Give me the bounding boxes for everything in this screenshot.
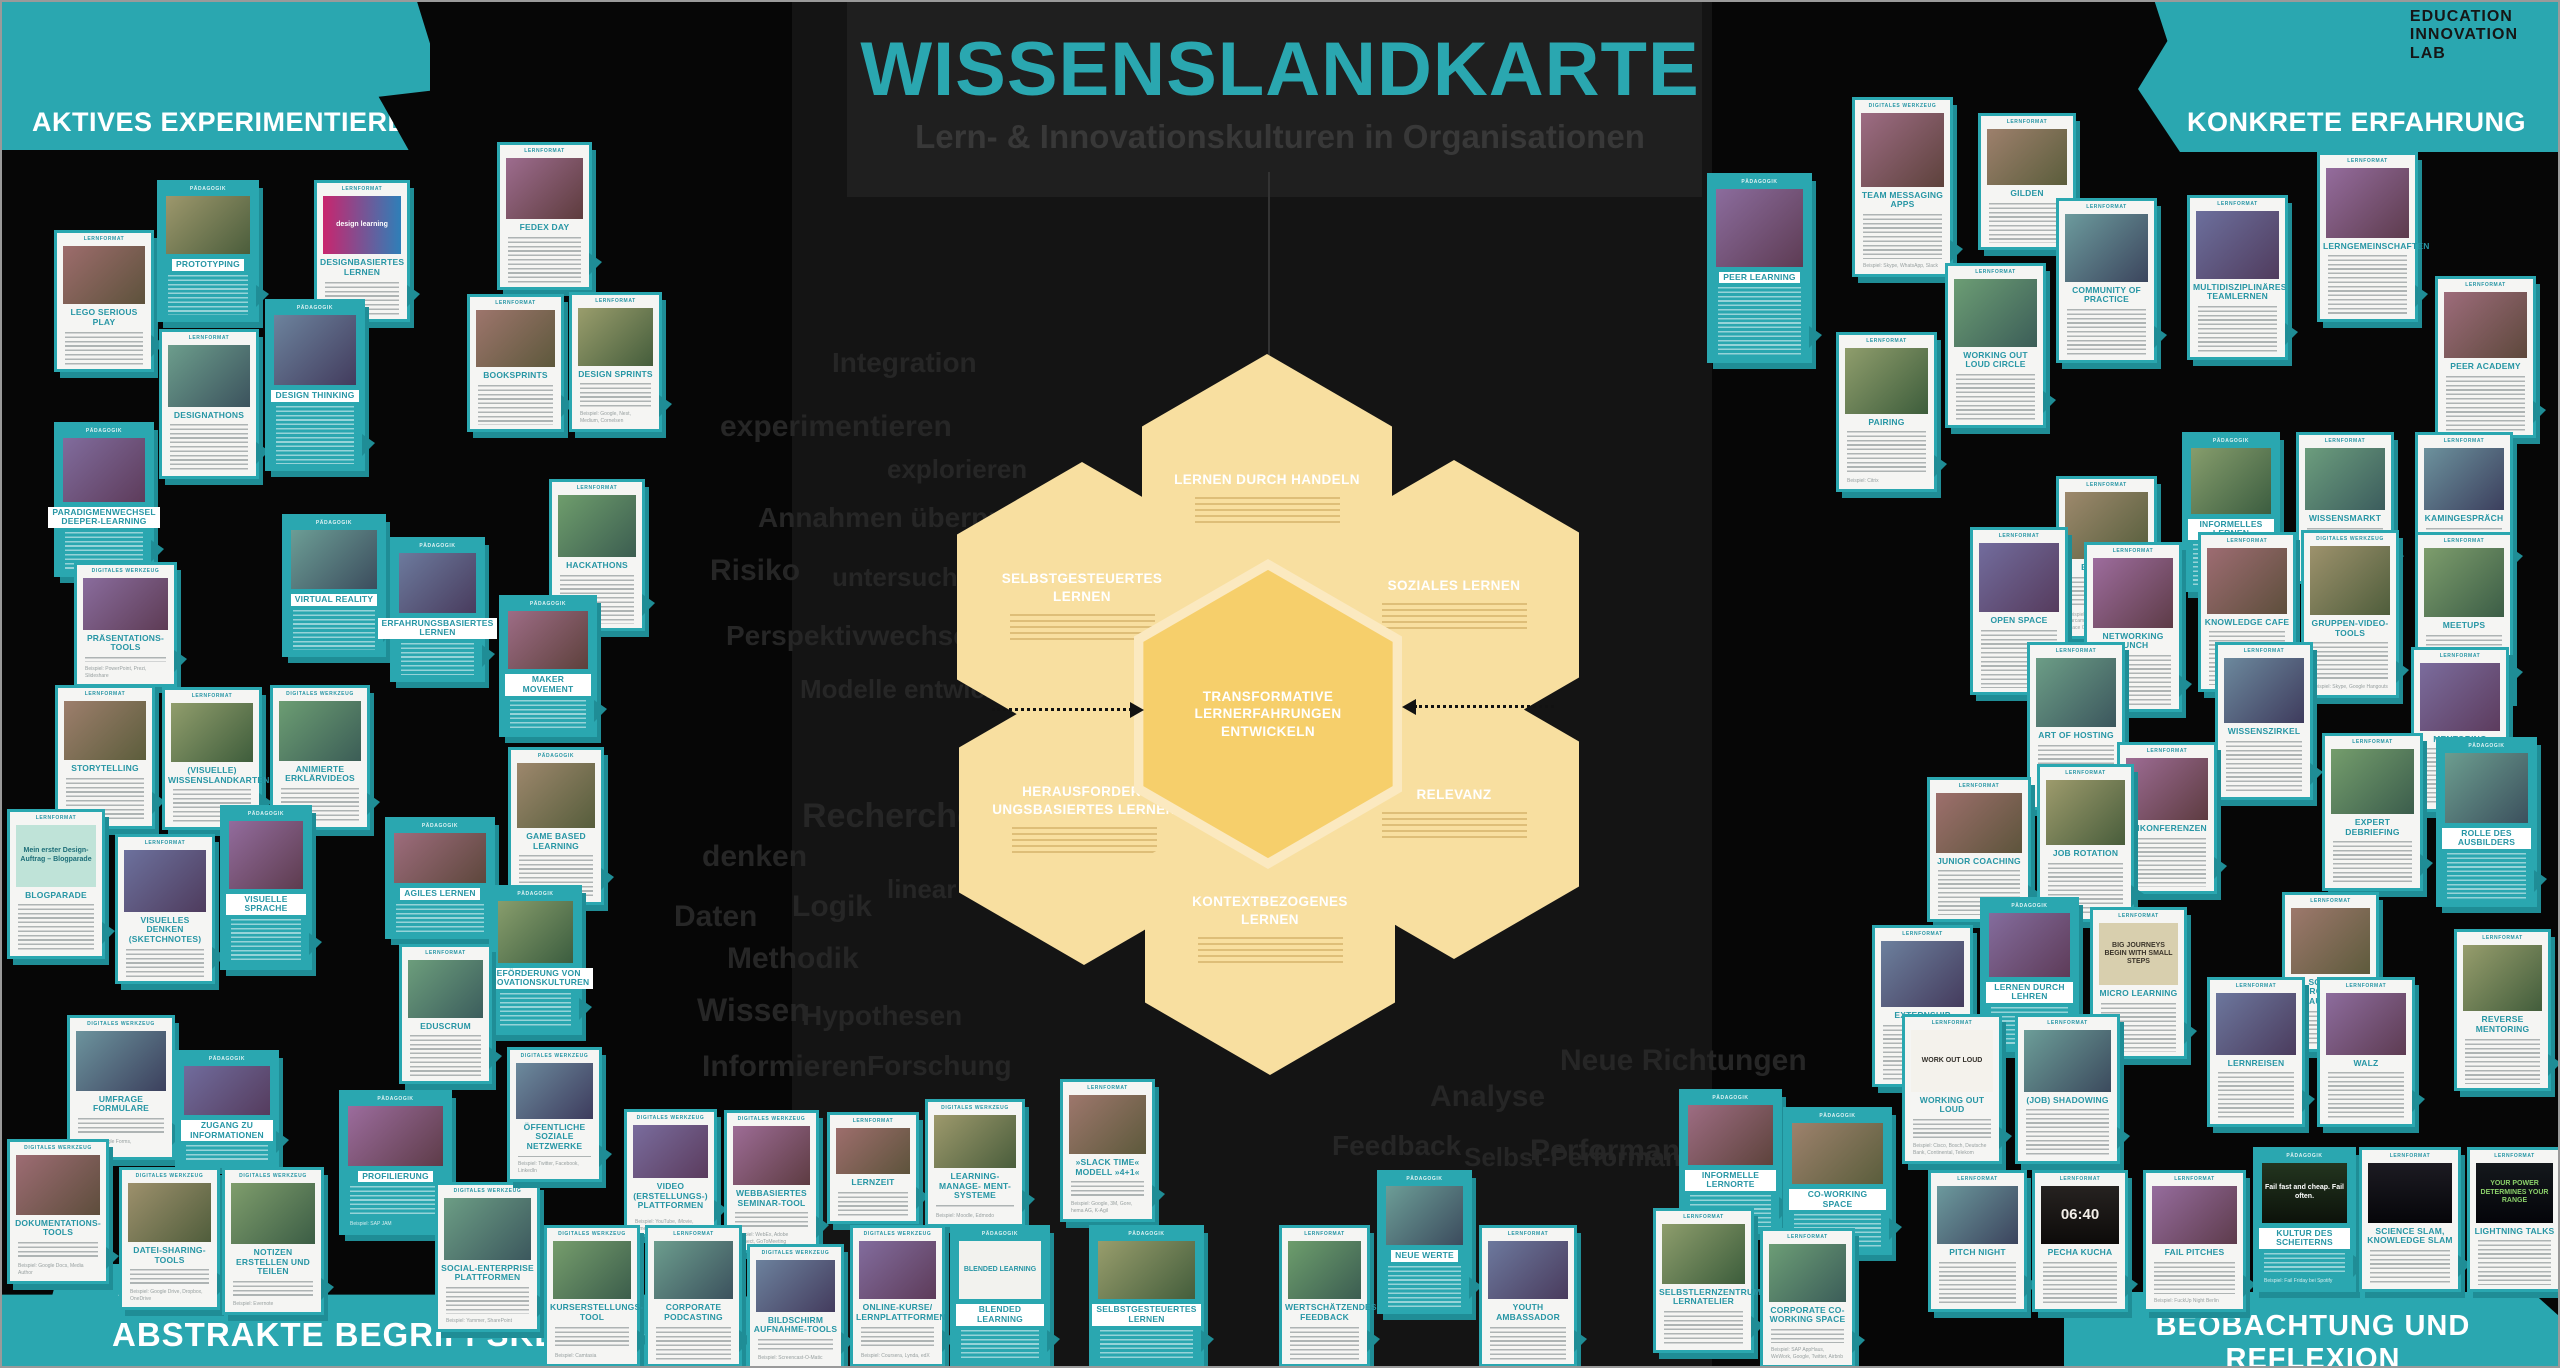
card-example: Beispiel: Cisco, Bosch, Deutsche Bank, C…: [1913, 1143, 1991, 1156]
card: LERNFORMATLERNZEIT: [827, 1112, 919, 1224]
card-body-text: [2264, 1253, 2345, 1273]
card-body-text: [656, 1327, 731, 1360]
card-body-text: [65, 332, 143, 365]
card: LERNFORMAT(JOB) SHADOWING: [2015, 1014, 2120, 1164]
card: PÄDAGOGIKZUGANG ZU INFORMATIONEN: [175, 1050, 279, 1168]
card-body-text: [2446, 376, 2525, 431]
card-category-tag: LERNFORMAT: [1931, 1176, 2024, 1182]
card-photo: [517, 763, 595, 828]
background-word: linear: [887, 874, 956, 905]
card-photo: [2326, 993, 2406, 1055]
card-photo: [1769, 1244, 1846, 1302]
card-category-tag: PÄDAGOGIK: [953, 1231, 1047, 1237]
card-photo: [229, 821, 303, 889]
card-photo: [2310, 546, 2390, 615]
card-category-tag: PÄDAGOGIK: [1710, 179, 1809, 185]
card-body-text: [500, 993, 571, 1028]
card-photo: [633, 1125, 708, 1178]
card: DIGITALES WERKZEUGGRUPPEN-VIDEO-TOOLSBei…: [2301, 530, 2399, 698]
card-body-text: [1490, 1327, 1566, 1360]
card-category-tag: LERNFORMAT: [2320, 158, 2415, 164]
card-category-tag: DIGITALES WERKZEUG: [627, 1115, 714, 1121]
connector-dotted-right: [1414, 705, 1554, 708]
card-title: JOB ROTATION: [2043, 849, 2128, 859]
card-photo: [408, 960, 483, 1018]
card-photo: [2424, 448, 2504, 510]
card-photo: [399, 553, 476, 613]
card-body-text: [1388, 1266, 1461, 1307]
card-body-text: [18, 904, 94, 952]
card-title: SELBSTLERNZENTRUM/ LERNATELIER: [1659, 1288, 1748, 1308]
background-word: Informieren: [702, 1050, 867, 1084]
background-word: Wissen: [697, 992, 809, 1029]
card-title: SCIENCE SLAM, KNOWLEDGE SLAM: [2365, 1227, 2455, 1247]
card-title: SELBSTGESTEUERTES LERNEN: [1092, 1304, 1200, 1326]
card-title: (JOB) SHADOWING: [2021, 1096, 2114, 1106]
card-photo: [508, 611, 588, 669]
card-category-tag: LERNFORMAT: [1063, 1085, 1152, 1091]
card-title: ROLLE DES AUSBILDERS: [2442, 828, 2531, 850]
card-photo: [171, 703, 253, 762]
card-title: BLOGPARADE: [13, 891, 99, 901]
card-category-tag: LERNFORMAT: [830, 1118, 916, 1124]
card-title: PECHA KUCHA: [2038, 1248, 2122, 1258]
card-title: AGILES LERNEN: [400, 888, 480, 900]
card: LERNFORMAT06:40PECHA KUCHA: [2032, 1170, 2128, 1312]
card-category-tag: PÄDAGOGIK: [1682, 1095, 1779, 1101]
card: PÄDAGOGIKFail fast and cheap. Fail often…: [2253, 1147, 2356, 1292]
card: LERNFORMATBOOKSPRINTS: [467, 294, 564, 432]
card-category-tag: PÄDAGOGIK: [1092, 1231, 1201, 1237]
card-category-tag: LERNFORMAT: [2418, 438, 2510, 444]
card-photo: [756, 1260, 835, 1312]
card-category-tag: LERNFORMAT: [2059, 482, 2154, 488]
card-body-text: [1100, 1330, 1193, 1360]
card: PÄDAGOGIKROLLE DES AUSBILDERS: [2436, 737, 2537, 907]
card-title: KAMINGESPRÄCH: [2421, 514, 2507, 524]
card-title: CO-WORKING SPACE: [1789, 1189, 1886, 1211]
card-category-tag: LERNFORMAT: [58, 691, 152, 697]
card-photo: [498, 901, 573, 963]
quadrant-label: BEOBACHTUNG UND REFLEXION: [2064, 1310, 2560, 1368]
card-category-tag: DIGITALES WERKZEUG: [77, 568, 174, 574]
card-body-text: [2465, 1039, 2540, 1084]
card: PÄDAGOGIKMAKER MOVEMENT: [499, 595, 597, 737]
card-category-tag: LERNFORMAT: [470, 300, 561, 306]
card: LERNFORMATPITCH NIGHT: [1928, 1170, 2027, 1312]
card-example: Beispiel: Camtasia: [555, 1353, 629, 1360]
card-title: REVERSE MENTORING: [2460, 1015, 2545, 1035]
hexagon-body-text: [1012, 827, 1157, 857]
card-category-tag: LERNFORMAT: [552, 485, 642, 491]
background-word: Recherche: [802, 797, 976, 836]
card-body-text: [735, 1212, 808, 1228]
card: PÄDAGOGIKPEER LEARNING: [1707, 173, 1812, 363]
card-photo: BLENDED LEARNING: [959, 1241, 1041, 1299]
card-category-tag: PÄDAGOGIK: [1786, 1113, 1889, 1119]
card: LERNFORMAT»SLACK TIME« MODELL »4+1«Beisp…: [1060, 1079, 1155, 1222]
card-title: INFORMELLE LERNORTE: [1685, 1170, 1776, 1192]
card-title: WISSENSZIRKEL: [2221, 727, 2307, 737]
card-title: KULTUR DES SCHEITERNS: [2259, 1228, 2350, 1250]
card: PÄDAGOGIKBLENDED LEARNINGBLENDED LEARNIN…: [950, 1225, 1050, 1367]
card: LERNFORMATLEGO SERIOUS PLAY: [54, 230, 154, 372]
card-photo: [506, 158, 583, 219]
card-title: LERNGEMEINSCHAFTEN: [2323, 242, 2412, 252]
card-title: DESIGN THINKING: [271, 390, 358, 402]
background-word: Methodik: [727, 942, 859, 976]
card-photo: [1069, 1095, 1146, 1154]
card-category-tag: LERNFORMAT: [2418, 538, 2510, 544]
card-body-text: [1956, 374, 2035, 421]
card-category-tag: LERNFORMAT: [1763, 1234, 1852, 1240]
card: PÄDAGOGIKDESIGN THINKING: [265, 299, 365, 471]
card-title: LERNZEIT: [833, 1178, 913, 1188]
card-body-text: [936, 1205, 1014, 1208]
card-body-text: [2312, 642, 2388, 679]
card-category-tag: LERNFORMAT: [2438, 282, 2533, 288]
card-photo: [2036, 658, 2116, 727]
card-category-tag: PÄDAGOGIK: [285, 520, 383, 526]
card-body-text: [1664, 1311, 1743, 1346]
card-category-tag: LERNFORMAT: [2030, 648, 2122, 654]
card-title: MICRO LEARNING: [2096, 989, 2181, 999]
card: LERNFORMATFAIL PITCHESBeispiel: FuckUp N…: [2143, 1170, 2246, 1312]
card-example: Beispiel: SAP JAM: [350, 1221, 441, 1228]
card: LERNFORMATSCIENCE SLAM, KNOWLEDGE SLAM: [2359, 1147, 2461, 1292]
card-photo: [836, 1128, 910, 1174]
card-category-tag: LERNFORMAT: [1839, 338, 1934, 344]
card-title: PITCH NIGHT: [1934, 1248, 2021, 1258]
card-example: Beispiel: SAP AppHaus, WeWork, Google, T…: [1771, 1347, 1844, 1360]
card-photo: [1386, 1186, 1463, 1245]
card-title: TEAM MESSAGING APPS: [1858, 191, 1947, 211]
card-category-tag: LERNFORMAT: [2059, 204, 2154, 210]
card-body-text: [2447, 853, 2526, 900]
card-title: ART OF HOSTING: [2033, 731, 2119, 741]
card-category-tag: LERNFORMAT: [2190, 201, 2285, 207]
card-category-tag: LERNFORMAT: [118, 840, 212, 846]
card-category-tag: PÄDAGOGIK: [160, 186, 256, 192]
card-example: Beispiel: Coursera, Lynda, edX: [861, 1353, 934, 1360]
card-body-text: [401, 643, 474, 675]
card: LERNFORMATCORPORATE PODCASTING: [645, 1225, 742, 1367]
card-body-text: [961, 1330, 1039, 1360]
card-title: DESIGNBASIERTES LERNEN: [320, 258, 404, 278]
card-category-tag: LERNFORMAT: [500, 148, 589, 154]
card-photo: [1936, 793, 2022, 853]
card-photo: [654, 1241, 733, 1299]
card-category-tag: LERNFORMAT: [317, 186, 407, 192]
card-example: Beispiel: Google, Nest, Medium, Cornelse…: [580, 411, 651, 424]
card: PÄDAGOGIKAGILES LERNEN: [385, 817, 495, 939]
card-category-tag: LERNFORMAT: [1948, 269, 2043, 275]
card-body-text: [168, 275, 248, 315]
arrowhead-left-icon: [1402, 699, 1416, 715]
card-title: EXPERT DEBRIEFING: [2328, 818, 2417, 838]
card-photo: [2326, 168, 2409, 238]
card-photo: [64, 701, 146, 760]
card-photo: [1098, 1241, 1195, 1299]
card: LERNFORMATCORPORATE CO- WORKING SPACEBei…: [1760, 1228, 1855, 1368]
card-category-tag: PÄDAGOGIK: [268, 305, 362, 311]
card-category-tag: DIGITALES WERKZEUG: [853, 1231, 942, 1237]
card-category-tag: LERNFORMAT: [1905, 1020, 1999, 1026]
card-category-tag: DIGITALES WERKZEUG: [273, 691, 367, 697]
card-title: WORKING OUT LOUD: [1908, 1096, 1996, 1116]
card-category-tag: LERNFORMAT: [2201, 538, 2293, 544]
card-category-tag: LERNFORMAT: [2093, 913, 2184, 919]
card: DIGITALES WERKZEUGSOCIAL-ENTERPRISE PLAT…: [435, 1182, 540, 1332]
card: LERNFORMATWORKING OUT LOUD CIRCLE: [1945, 263, 2046, 428]
card: LERNFORMATREVERSE MENTORING: [2454, 929, 2551, 1091]
card-body-text: [2198, 306, 2277, 353]
card-title: MULTIDISZIPLINÄRES TEAMLERNEN: [2193, 283, 2282, 303]
card-photo: [1861, 113, 1944, 187]
card-body-text: [410, 1035, 481, 1077]
card-category-tag: LERNFORMAT: [2325, 739, 2420, 745]
card: DIGITALES WERKZEUGBILDSCHIRM AUFNAHME-TO…: [747, 1244, 844, 1368]
card-category-tag: DIGITALES WERKZEUG: [928, 1105, 1022, 1111]
card-body-text: [1913, 1119, 1991, 1139]
arrowhead-right-icon: [1130, 702, 1144, 718]
card: DIGITALES WERKZEUGDATEI-SHARING-TOOLSBei…: [119, 1167, 220, 1310]
card-title: DATEI-SHARING-TOOLS: [125, 1246, 214, 1266]
card-category-tag: LERNFORMAT: [57, 236, 151, 242]
hexagon-body-text: [1382, 603, 1527, 633]
card-body-text: [861, 1327, 934, 1349]
card-body-text: [186, 1145, 268, 1161]
card-title: PARADIGMENWECHSEL DEEPER-LEARNING: [48, 507, 159, 529]
card-title: UMFRAGE FORMULARE: [73, 1095, 169, 1115]
card-body-text: [508, 237, 581, 283]
card: LERNFORMATSELBSTLERNZENTRUM/ LERNATELIER: [1653, 1208, 1754, 1353]
card-title: GRUPPEN-VIDEO-TOOLS: [2307, 619, 2393, 639]
card-category-tag: PÄDAGOGIK: [223, 811, 309, 817]
card-photo: [2024, 1030, 2111, 1092]
card-photo: [2445, 753, 2528, 823]
background-word: Perspektivwechsel: [726, 620, 977, 652]
card-title: PEER LEARNING: [1719, 272, 1800, 284]
card-photo: BIG JOURNEYS BEGIN WITH SMALL STEPS: [2099, 923, 2178, 985]
card-photo: [1987, 129, 2067, 185]
card-title: HACKATHONS: [555, 561, 639, 571]
card-example: Beispiel: PowerPoint, Prezi, Slideshare: [85, 666, 166, 679]
card-example: Beispiel: Evernote: [233, 1301, 313, 1308]
card-body-text: [478, 385, 553, 425]
card-photo: [1716, 189, 1803, 267]
card-photo: [2152, 1186, 2237, 1244]
card: LERNFORMATCOMMUNITY OF PRACTICE: [2056, 198, 2157, 363]
card: LERNFORMATLERNGEMEINSCHAFTEN: [2317, 152, 2418, 322]
card-category-tag: LERNFORMAT: [10, 815, 102, 821]
card: LERNFORMATWERTSCHÄTZENDES FEEDBACK: [1279, 1225, 1370, 1367]
card-body-text: [2154, 1262, 2235, 1293]
card: LERNFORMATEXPERT DEBRIEFING: [2322, 733, 2423, 891]
card-category-tag: LERNFORMAT: [402, 950, 489, 956]
card-photo: [2444, 292, 2527, 358]
card-category-tag: LERNFORMAT: [2035, 1176, 2125, 1182]
card: LERNFORMATDESIGNATHONS: [159, 329, 259, 479]
card-photo: [859, 1241, 936, 1299]
card-category-tag: LERNFORMAT: [2210, 983, 2302, 989]
card-title: ANIMIERTE ERKLÄRVIDEOS: [276, 765, 364, 785]
card-title: WALZ: [2323, 1059, 2409, 1069]
card: DIGITALES WERKZEUGNOTIZEN ERSTELLEN UND …: [222, 1167, 324, 1315]
card-category-tag: DIGITALES WERKZEUG: [547, 1231, 637, 1237]
card-body-text: [126, 949, 204, 977]
card-photo: [168, 345, 250, 407]
card-photo: YOUR POWER DETERMINES YOUR RANGE: [2476, 1163, 2553, 1223]
card-example: Beispiel: Moodle, Edmodo: [936, 1213, 1014, 1220]
card-category-tag: DIGITALES WERKZEUG: [727, 1116, 816, 1122]
card: PÄDAGOGIKSELBSTGESTEUERTES LERNEN: [1089, 1225, 1204, 1367]
card-photo: [128, 1183, 211, 1242]
card-body-text: [555, 1327, 629, 1349]
card: LERNFORMATMein erster Design-Auftrag – B…: [7, 809, 105, 959]
card-title: KURSERSTELLUNGS-TOOL: [550, 1303, 634, 1323]
hexagon-body-text: [1198, 937, 1343, 967]
card-photo: [394, 833, 486, 883]
quadrant-banner-top-left: AKTIVES EXPERIMENTIEREN: [2, 2, 430, 150]
card-photo: [1881, 941, 1964, 1007]
card-example: Beispiel: Skype, WhatsApp, Slack: [1863, 263, 1942, 270]
background-word: denken: [702, 840, 807, 874]
card-category-tag: PÄDAGOGIK: [2256, 1153, 2353, 1159]
card-category-tag: LERNFORMAT: [2040, 770, 2131, 776]
card-photo: [2191, 448, 2271, 514]
card-body-text: [580, 383, 651, 407]
card-category-tag: DIGITALES WERKZEUG: [70, 1021, 172, 1027]
background-word: Integration: [832, 347, 977, 379]
card-photo: [274, 315, 356, 385]
card-title: BOOKSPRINTS: [473, 371, 558, 381]
card-title: OPEN SPACE: [1976, 616, 2062, 626]
card-photo: [1288, 1241, 1361, 1299]
card-title: VIDEO (ERSTELLUNGS-) PLATTFORMEN: [630, 1182, 711, 1211]
card-example: Beispiel: Google, 3M, Gore, hema AG, K-A…: [1071, 1201, 1144, 1214]
card-photo: [2305, 448, 2385, 510]
card-category-tag: LERNFORMAT: [2218, 648, 2310, 654]
card: PÄDAGOGIKVISUELLE SPRACHE: [220, 805, 312, 970]
card-category-tag: LERNFORMAT: [1981, 119, 2073, 125]
card-photo: [1937, 1186, 2018, 1244]
card-category-tag: LERNFORMAT: [165, 693, 259, 699]
card-title: PROFILIERUNG: [358, 1171, 433, 1183]
card-title: WEBBASIERTES SEMINAR-TOOL: [730, 1189, 813, 1209]
card: LERNFORMATYOUR POWER DETERMINES YOUR RAN…: [2467, 1147, 2560, 1292]
card-category-tag: LERNFORMAT: [2320, 983, 2412, 989]
card-category-tag: PÄDAGOGIK: [492, 891, 579, 897]
card-category-tag: PÄDAGOGIK: [1983, 903, 2076, 909]
card-title: VISUELLES DENKEN (SKETCHNOTES): [121, 916, 209, 945]
card-body-text: [510, 700, 586, 730]
card-title: VIRTUAL REALITY: [291, 594, 377, 606]
card-photo: [63, 438, 145, 502]
card-title: (VISUELLE) WISSENSLANDKARTEN: [168, 766, 256, 786]
card-photo: [2291, 908, 2370, 974]
card-body-text: [1071, 1181, 1144, 1197]
card-title: COMMUNITY OF PRACTICE: [2062, 286, 2151, 306]
card-photo: [231, 1183, 315, 1244]
card: PÄDAGOGIKPROTOTYPING: [157, 180, 259, 322]
card-title: BEFÖRDERUNG VON INNOVATIONSKULTUREN: [478, 968, 594, 990]
card-category-tag: DIGITALES WERKZEUG: [2304, 536, 2396, 542]
card-category-tag: DIGITALES WERKZEUG: [750, 1250, 841, 1256]
card-photo: [2424, 548, 2504, 617]
card-category-tag: DIGITALES WERKZEUG: [1855, 103, 1950, 109]
card-body-text: [1863, 214, 1942, 258]
card-body-text: [293, 610, 375, 650]
card-photo: [2093, 558, 2173, 628]
card-photo: [553, 1241, 631, 1299]
card-category-tag: DIGITALES WERKZEUG: [438, 1188, 537, 1194]
card-photo: [2224, 658, 2304, 723]
card-category-tag: LERNFORMAT: [1875, 931, 1970, 937]
card-title: CORPORATE CO- WORKING SPACE: [1766, 1306, 1849, 1326]
card-example: Beispiel: Google Drive, Dropbox, OneDriv…: [130, 1289, 209, 1302]
card-photo: [184, 1066, 270, 1115]
card-title: PRÄSENTATIONS-TOOLS: [80, 634, 171, 654]
card-photo: [16, 1155, 100, 1215]
card-example: Beispiel: Yammer, SharePoint: [446, 1318, 529, 1325]
quadrant-banner-bottom-right: BEOBACHTUNG UND REFLEXION: [2064, 1292, 2560, 1366]
card-photo: [76, 1031, 166, 1091]
card-photo: [733, 1126, 810, 1185]
background-word: Analyse: [1430, 1080, 1545, 1114]
card-title: BLENDED LEARNING: [956, 1304, 1044, 1326]
card-category-tag: LERNFORMAT: [572, 298, 659, 304]
card-example: Beispiel: FuckUp Night Berlin: [2154, 1298, 2235, 1305]
card-category-tag: PÄDAGOGIK: [178, 1056, 276, 1062]
card-example: Beispiel: Fail Friday bei Spotify: [2264, 1278, 2345, 1285]
card-body-text: [170, 424, 248, 472]
card-body-text: [78, 1118, 164, 1135]
card-photo: [291, 530, 377, 589]
card-title: CORPORATE PODCASTING: [651, 1303, 736, 1323]
card: LERNFORMATSTORYTELLING: [55, 685, 155, 829]
card-photo: [63, 246, 145, 304]
card: PÄDAGOGIKBEFÖRDERUNG VON INNOVATIONSKULT…: [489, 885, 582, 1035]
card-example: Beispiel: Google Docs, Media Author: [18, 1263, 98, 1276]
card-body-text: [1939, 1262, 2016, 1305]
card-example: Beispiel: Twitter, Facebook, LinkedIn: [518, 1161, 591, 1174]
card-category-tag: LERNFORMAT: [2457, 935, 2548, 941]
card-title: LERNREISEN: [2213, 1059, 2299, 1069]
card: PÄDAGOGIKNEUE WERTE: [1377, 1170, 1472, 1314]
card-title: GAME BASED LEARNING: [514, 832, 598, 852]
card-body-text: [1989, 203, 2065, 243]
card-photo: [934, 1115, 1016, 1168]
background-word: Risiko: [710, 554, 800, 588]
card-photo: [2463, 945, 2542, 1011]
card-title: NEUE WERTE: [1391, 1250, 1458, 1262]
card-body-text: [2328, 1072, 2404, 1120]
hexagon-body-text: [1195, 497, 1340, 527]
card-category-tag: PÄDAGOGIK: [57, 428, 151, 434]
card-body-text: [276, 406, 354, 464]
card-title: SOCIAL-ENTERPRISE PLATTFORMEN: [441, 1264, 534, 1284]
card-title: STORYTELLING: [61, 764, 149, 774]
card-body-text: [350, 1186, 441, 1216]
background-word: Hypothesen: [802, 1000, 962, 1032]
card-photo: [2065, 214, 2148, 282]
card-photo: [1845, 348, 1928, 414]
card-category-tag: LERNFORMAT: [2414, 653, 2506, 659]
card-title: LEGO SERIOUS PLAY: [60, 308, 148, 328]
card-photo: [2331, 749, 2414, 814]
card-body-text: [2026, 1109, 2109, 1157]
